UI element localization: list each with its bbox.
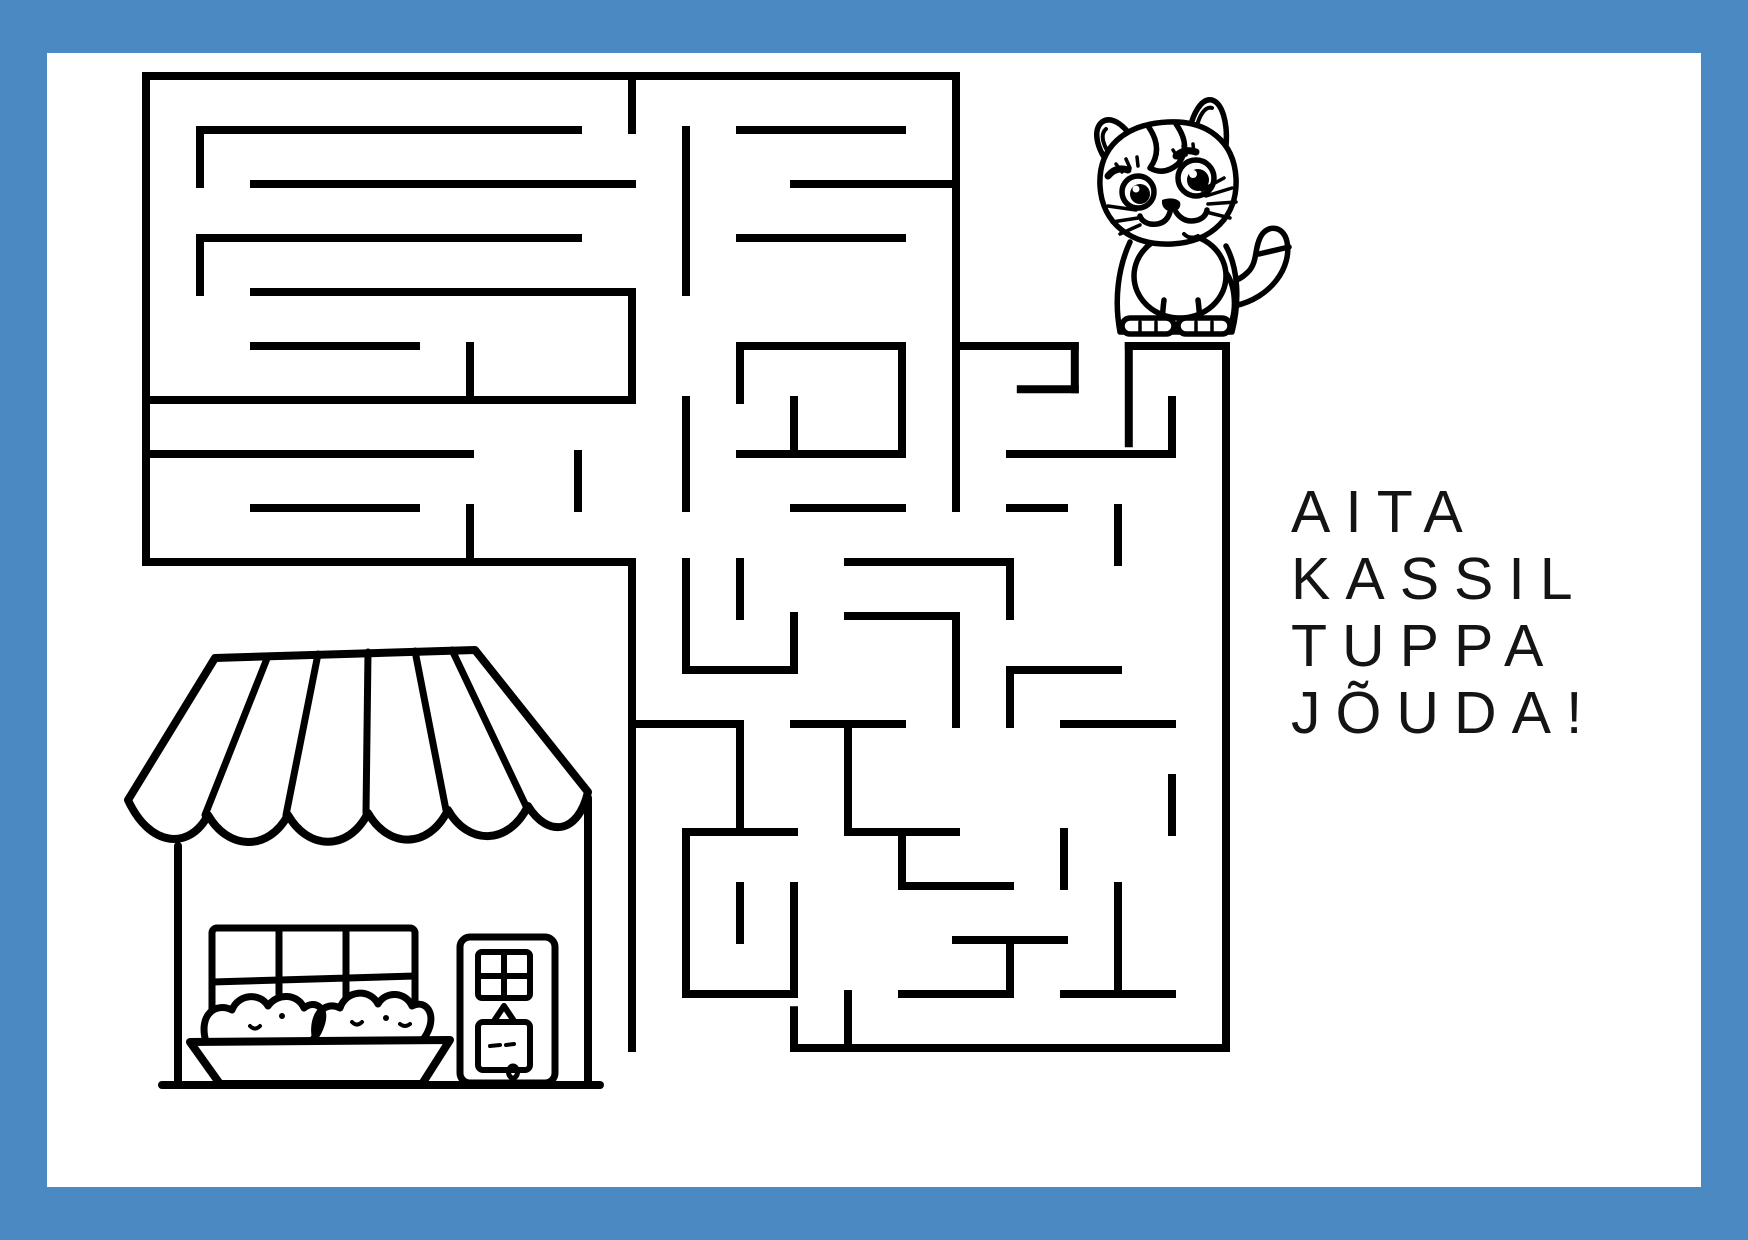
cat-illustration xyxy=(1097,100,1289,334)
caption-line: JÕUDA! xyxy=(1291,680,1597,747)
cat-paw xyxy=(1122,318,1174,334)
caption-line: TUPPA xyxy=(1291,613,1597,680)
cat-eye-glint xyxy=(1189,170,1197,178)
cat-pupil-left xyxy=(1130,184,1150,204)
caption: AITA KASSIL TUPPA JÕUDA! xyxy=(1291,479,1597,747)
house-illustration xyxy=(128,650,600,1085)
cat-eye-glint xyxy=(1133,186,1140,193)
flower-dot xyxy=(383,1015,389,1021)
flower-dot xyxy=(279,1013,285,1019)
flower-box-flowers xyxy=(204,993,431,1042)
cat-paw xyxy=(1178,318,1230,334)
maze xyxy=(146,76,1226,1048)
flower-box-tray xyxy=(190,1040,450,1084)
house-awning xyxy=(128,650,588,842)
door-sign xyxy=(478,1022,530,1070)
cat-chest-patch xyxy=(1134,234,1226,318)
page-border: AITA KASSIL TUPPA JÕUDA! xyxy=(0,0,1748,1240)
caption-line: KASSIL xyxy=(1291,546,1597,613)
caption-line: AITA xyxy=(1291,479,1597,546)
